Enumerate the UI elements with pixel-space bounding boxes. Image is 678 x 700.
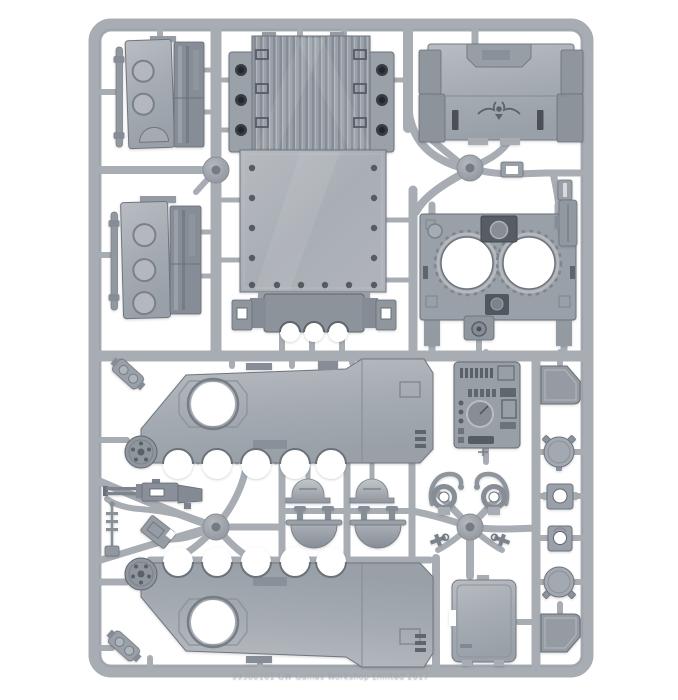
buckle-clip <box>501 162 523 177</box>
rear-door <box>419 44 583 145</box>
dashboard-console <box>454 362 520 456</box>
engine-deck <box>229 32 394 152</box>
hatch-door-1 <box>114 36 205 149</box>
dome-hatch-2 <box>350 479 394 503</box>
round-hatch-2 <box>542 567 576 599</box>
hull-floor <box>240 150 386 292</box>
embossed-copyright: 99380101 GW Games Workshop Limited 2017 … <box>232 672 429 682</box>
sprue-scene: 99380101 GW Games Workshop Limited 2017 … <box>0 0 678 700</box>
twin-hatch-roof <box>420 214 576 346</box>
drive-hub <box>125 436 157 468</box>
round-hatch-1 <box>542 435 576 471</box>
embossed-text: 99380101 GW Games Workshop Limited 2017 <box>232 672 429 681</box>
headlight-1 <box>431 474 464 515</box>
socket-plate-2 <box>548 526 572 551</box>
headlight-2 <box>474 474 507 515</box>
ramp-door <box>449 575 516 666</box>
drive-hub <box>125 558 157 590</box>
suspension-unit <box>232 292 396 342</box>
side-armor-upper <box>125 359 433 479</box>
hatch-door-2 <box>109 196 202 319</box>
door-hole <box>191 382 235 426</box>
dome-hatch-1 <box>286 479 330 503</box>
door-hole <box>191 600 235 644</box>
door-body <box>452 580 516 662</box>
corner-plate-top <box>541 366 580 404</box>
socket-plate-1 <box>543 484 577 509</box>
rail-clip-small <box>558 180 572 200</box>
corner-plate-bottom <box>541 614 580 652</box>
sprue-photo: 99380101 GW Games Workshop Limited 2017 … <box>0 0 678 700</box>
antenna <box>105 502 119 557</box>
side-armor-lower <box>125 547 433 667</box>
